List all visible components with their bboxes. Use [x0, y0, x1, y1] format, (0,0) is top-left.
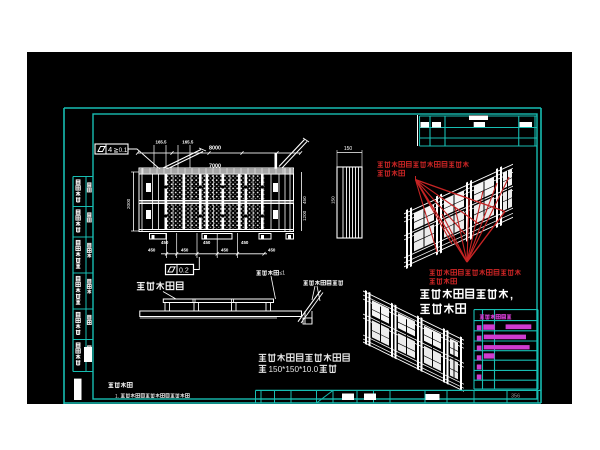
svg-text:,: ,	[510, 290, 513, 302]
svg-text:4: 4	[108, 145, 112, 154]
svg-text:7000: 7000	[209, 164, 221, 170]
svg-text:450: 450	[148, 247, 156, 252]
svg-text::: :	[132, 383, 134, 389]
svg-text:450: 450	[268, 247, 276, 252]
svg-text:≧0.1: ≧0.1	[114, 147, 128, 154]
svg-text:150: 150	[344, 146, 353, 152]
svg-text:1200: 1200	[302, 210, 307, 221]
svg-text:165.5: 165.5	[182, 140, 194, 145]
svg-text:0.2: 0.2	[179, 268, 189, 275]
svg-text:150*150*10.0: 150*150*10.0	[269, 365, 319, 374]
svg-text:450: 450	[302, 196, 307, 204]
svg-text:356: 356	[511, 394, 520, 400]
svg-text:450: 450	[161, 240, 169, 245]
svg-text:1.: 1.	[115, 394, 119, 400]
svg-text:450: 450	[241, 240, 249, 245]
svg-text:8000: 8000	[209, 146, 221, 152]
svg-text:150: 150	[331, 196, 336, 204]
svg-text:165.5: 165.5	[156, 140, 168, 145]
svg-text:450: 450	[203, 240, 211, 245]
svg-text:450: 450	[181, 247, 189, 252]
svg-text:≤1: ≤1	[280, 271, 286, 277]
svg-text:450: 450	[221, 247, 229, 252]
svg-text:2000: 2000	[126, 198, 131, 209]
